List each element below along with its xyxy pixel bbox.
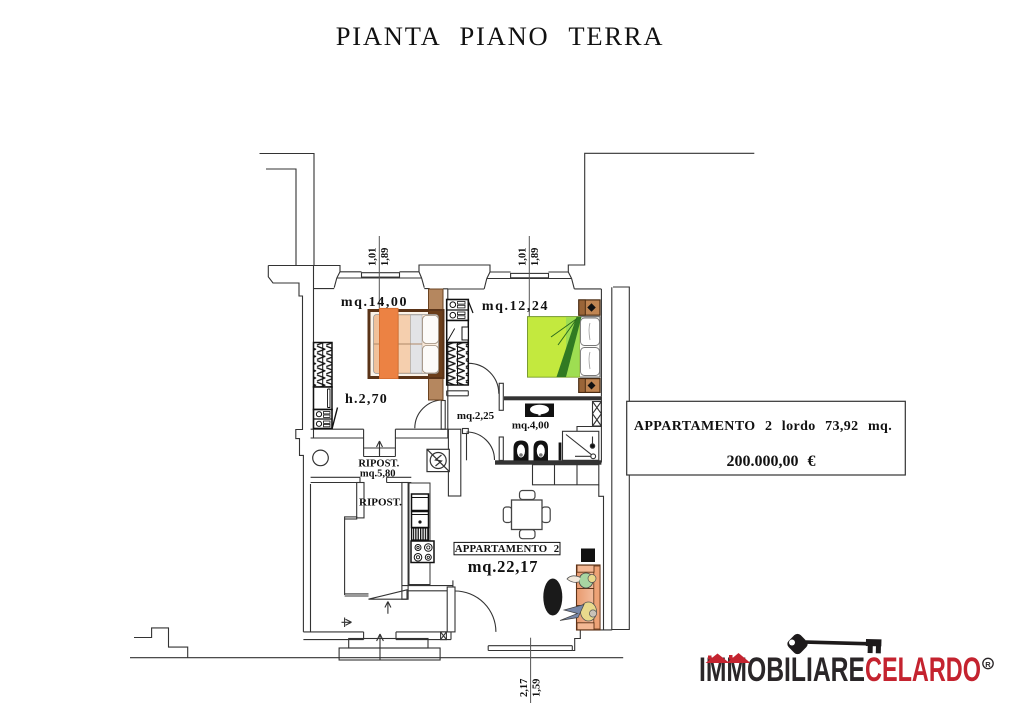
svg-text:mq.12,24: mq.12,24 [482,299,549,314]
svg-text:200.000,00 €: 200.000,00 € [727,453,816,470]
svg-text:1,01: 1,01 [368,248,379,266]
svg-text:CELARDO: CELARDO [865,651,981,689]
svg-text:1,89: 1,89 [380,248,391,266]
svg-text:APPARTAMENTO 2: APPARTAMENTO 2 [455,543,560,555]
svg-text:mq.2,25: mq.2,25 [457,410,495,422]
svg-text:mq.4,00: mq.4,00 [512,420,550,432]
svg-text:mq.14,00: mq.14,00 [341,295,408,310]
svg-text:R: R [985,660,991,669]
svg-text:RIPOST.: RIPOST. [359,497,402,509]
svg-text:PIANTA PIANO TERRA: PIANTA PIANO TERRA [336,21,665,51]
svg-text:APPARTAMENTO 2 lordo 73,92 mq.: APPARTAMENTO 2 lordo 73,92 mq. [634,419,892,434]
svg-text:IMMOBILIARE: IMMOBILIARE [699,651,865,689]
svg-text:1,89: 1,89 [530,248,541,266]
svg-text:mq.22,17: mq.22,17 [468,557,539,576]
svg-text:1,59: 1,59 [532,679,543,697]
svg-text:1,01: 1,01 [518,248,529,266]
svg-text:2,17: 2,17 [519,679,530,697]
svg-text:h.2,70: h.2,70 [345,392,388,407]
svg-text:mq.5,80: mq.5,80 [360,469,396,480]
